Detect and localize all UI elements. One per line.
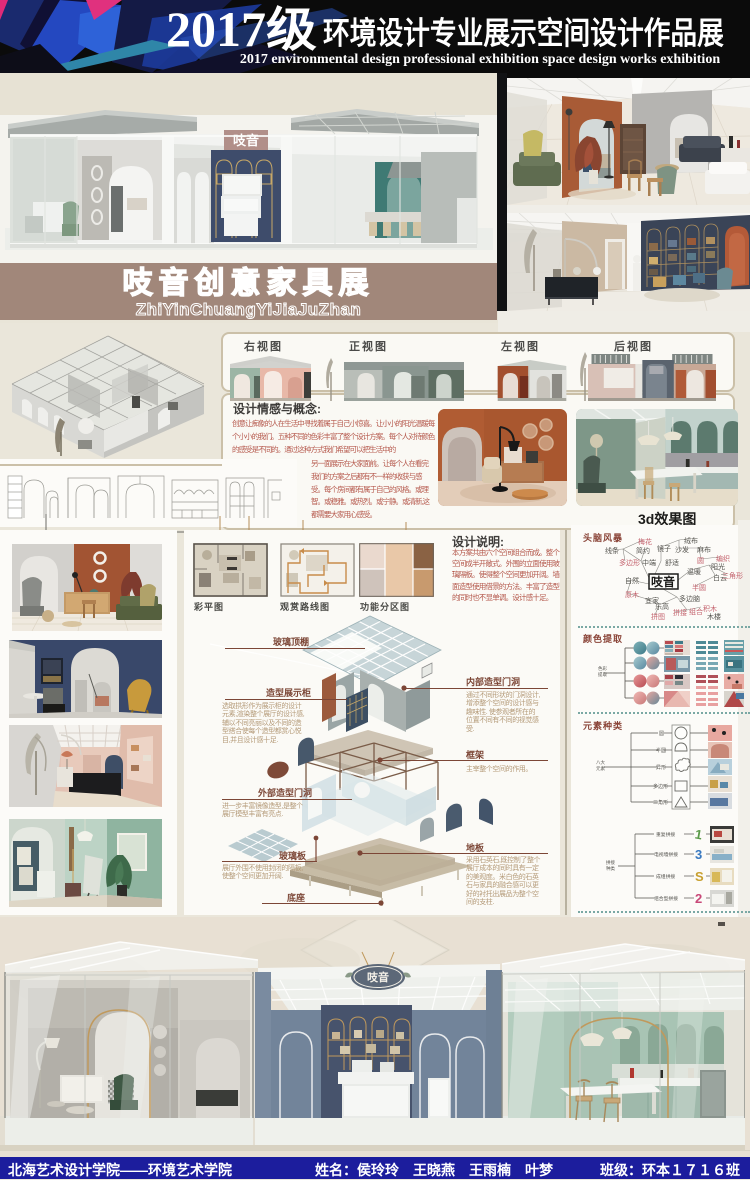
svg-text:多边形: 多边形 (619, 558, 640, 567)
svg-text:三角形: 三角形 (722, 571, 743, 580)
svg-text:成组拼接: 成组拼接 (656, 873, 675, 880)
svg-text:圆: 圆 (659, 731, 664, 737)
svg-text:自然: 自然 (625, 576, 639, 585)
svg-text:沙发: 沙发 (675, 545, 689, 554)
svg-text:积木: 积木 (703, 604, 717, 613)
svg-text:色彩: 色彩 (598, 665, 607, 672)
svg-text:乐高: 乐高 (655, 602, 669, 611)
svg-text:吱音: 吱音 (651, 574, 675, 589)
svg-text:原木: 原木 (625, 590, 639, 599)
svg-text:种类: 种类 (606, 865, 615, 872)
svg-text:多边形: 多边形 (653, 783, 668, 790)
svg-text:舒适: 舒适 (665, 558, 679, 567)
svg-text:半圆: 半圆 (656, 747, 666, 754)
svg-text:拼接: 拼接 (673, 608, 687, 617)
svg-text:拼接: 拼接 (606, 859, 615, 866)
svg-text:3: 3 (695, 847, 702, 862)
svg-text:提取: 提取 (598, 671, 607, 678)
svg-text:线条: 线条 (605, 546, 619, 555)
svg-text:镜子: 镜子 (657, 544, 671, 553)
svg-text:三角形: 三角形 (653, 799, 668, 806)
svg-text:半圆: 半圆 (692, 583, 706, 592)
svg-text:S: S (695, 869, 704, 884)
svg-text:木楼: 木楼 (707, 612, 721, 621)
svg-text:圆: 圆 (697, 557, 704, 565)
svg-text:重复拼接: 重复拼接 (656, 831, 675, 838)
svg-text:麻布: 麻布 (697, 545, 711, 554)
svg-text:2: 2 (695, 891, 702, 906)
svg-text:吱音: 吱音 (367, 970, 389, 984)
svg-text:阳光: 阳光 (711, 562, 725, 571)
svg-text:温暖: 温暖 (687, 567, 701, 576)
svg-text:电视墙拼接: 电视墙拼接 (654, 851, 678, 858)
svg-text:组合型拼接: 组合型拼接 (654, 895, 678, 902)
svg-text:异形: 异形 (656, 764, 666, 771)
svg-text:多边脑: 多边脑 (679, 594, 700, 603)
svg-text:元素: 元素 (596, 765, 605, 772)
svg-text:组合: 组合 (689, 607, 703, 616)
svg-text:中端: 中端 (642, 558, 656, 567)
svg-text:编织: 编织 (716, 554, 730, 563)
svg-text:简约: 简约 (636, 546, 650, 555)
svg-text:1: 1 (694, 826, 704, 842)
svg-text:拼图: 拼图 (651, 612, 665, 621)
svg-text:绒布: 绒布 (684, 536, 698, 545)
svg-text:梅花: 梅花 (638, 537, 652, 546)
svg-text:八大: 八大 (596, 759, 605, 766)
